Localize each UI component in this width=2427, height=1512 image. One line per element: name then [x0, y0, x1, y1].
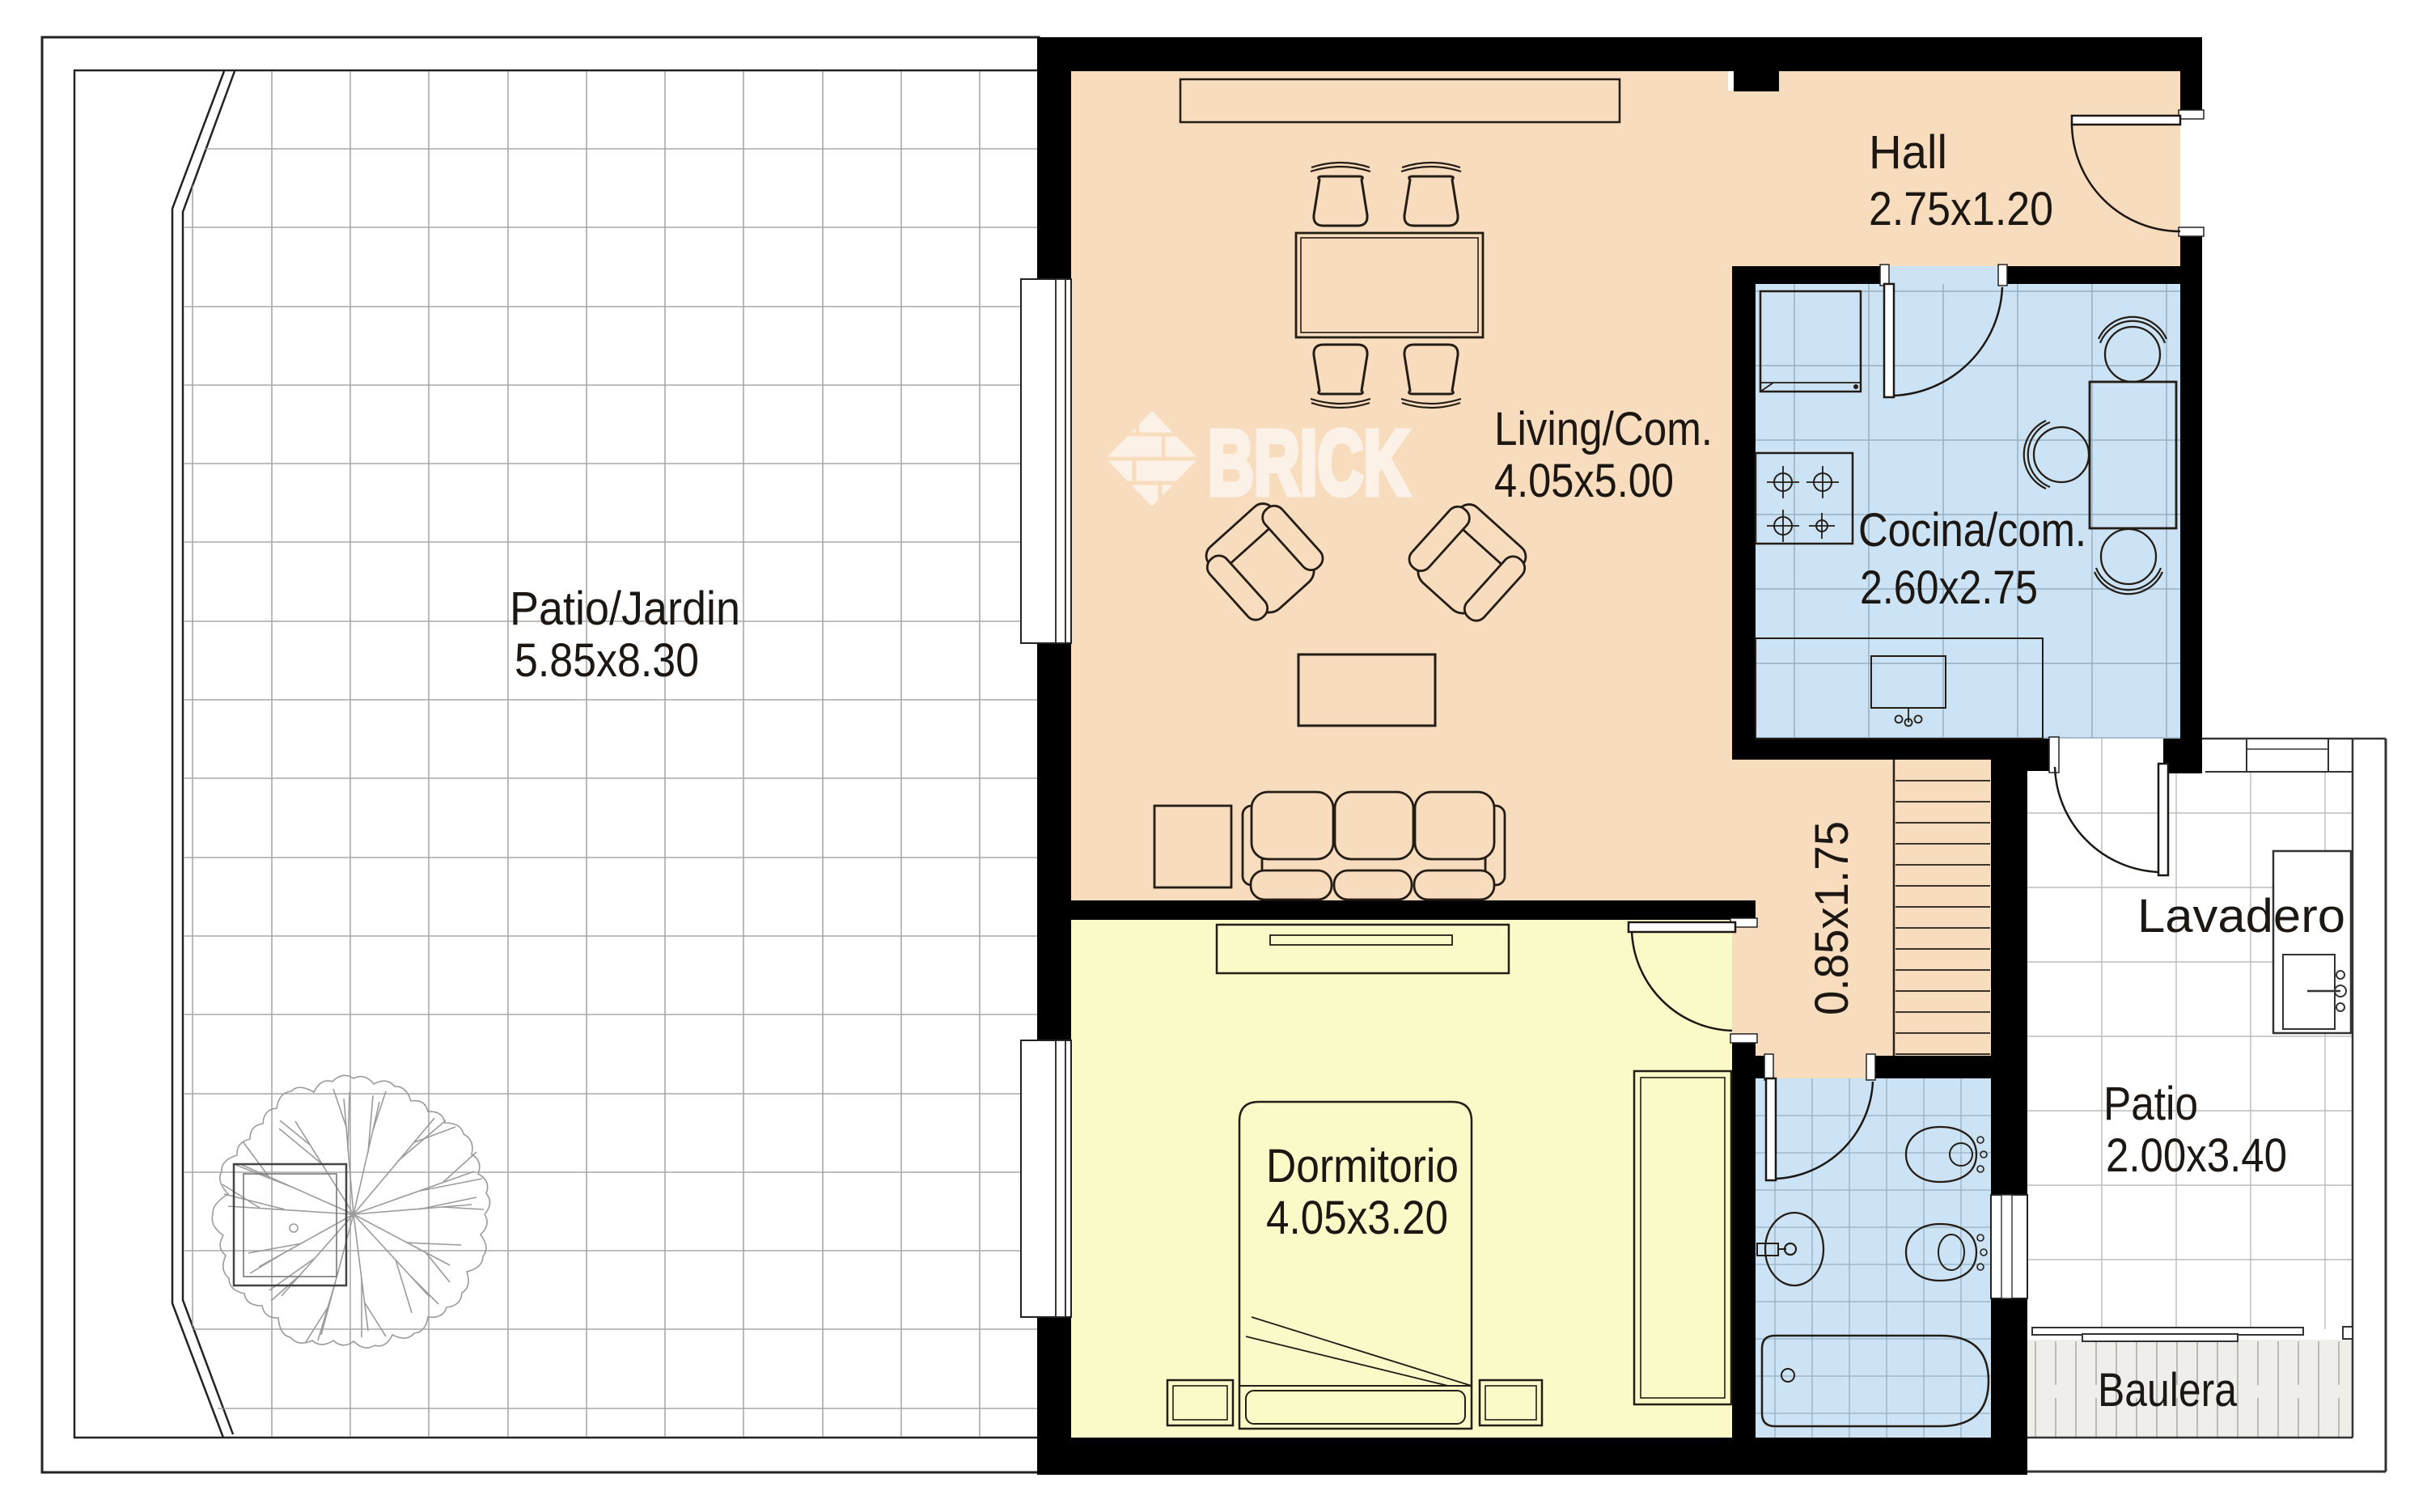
svg-text:Patio: Patio [2103, 1078, 2198, 1130]
svg-text:2.60x2.75: 2.60x2.75 [1860, 561, 2038, 614]
svg-text:Baulera: Baulera [2098, 1364, 2238, 1417]
svg-text:2.00x3.40: 2.00x3.40 [2106, 1129, 2287, 1182]
svg-text:Patio/Jardin: Patio/Jardin [510, 582, 740, 635]
svg-text:Cocina/com.: Cocina/com. [1858, 504, 2086, 557]
svg-text:Dormitorio: Dormitorio [1266, 1140, 1459, 1192]
svg-text:Lavadero: Lavadero [2137, 890, 2345, 942]
svg-text:0.85x1.75: 0.85x1.75 [1806, 821, 1858, 1015]
svg-text:Living/Com.: Living/Com. [1494, 403, 1713, 455]
svg-text:4.05x5.00: 4.05x5.00 [1494, 455, 1674, 507]
svg-text:BRICK: BRICK [1208, 413, 1409, 515]
svg-text:4.05x3.20: 4.05x3.20 [1266, 1192, 1448, 1244]
svg-text:Hall: Hall [1869, 126, 1947, 179]
svg-text:2.75x1.20: 2.75x1.20 [1869, 183, 2053, 235]
svg-text:5.85x8.30: 5.85x8.30 [515, 634, 699, 687]
